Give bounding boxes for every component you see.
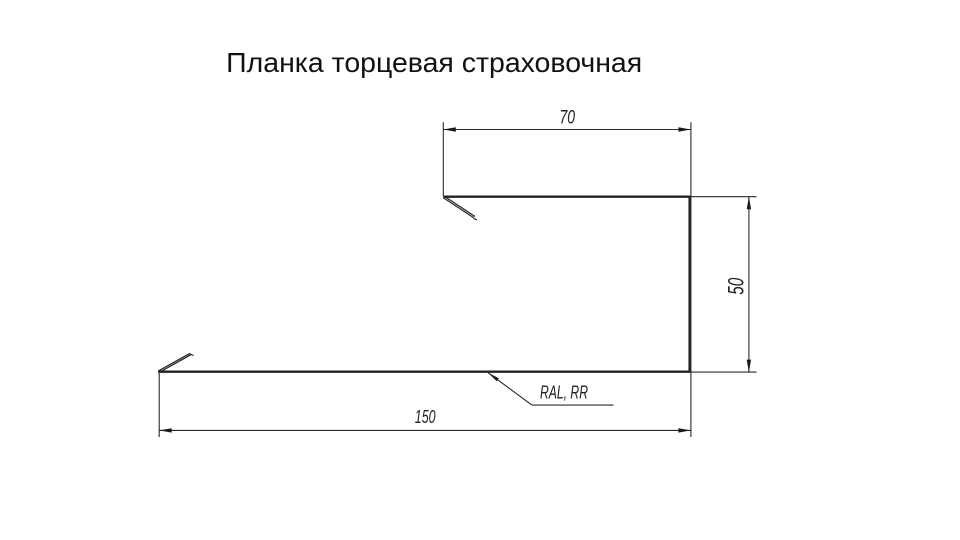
svg-text:50: 50	[723, 277, 748, 295]
svg-text:150: 150	[415, 406, 436, 427]
svg-text:70: 70	[560, 107, 576, 129]
svg-text:Планка торцевая страховочная: Планка торцевая страховочная	[226, 47, 642, 78]
svg-text:RAL, RR: RAL, RR	[540, 382, 588, 403]
